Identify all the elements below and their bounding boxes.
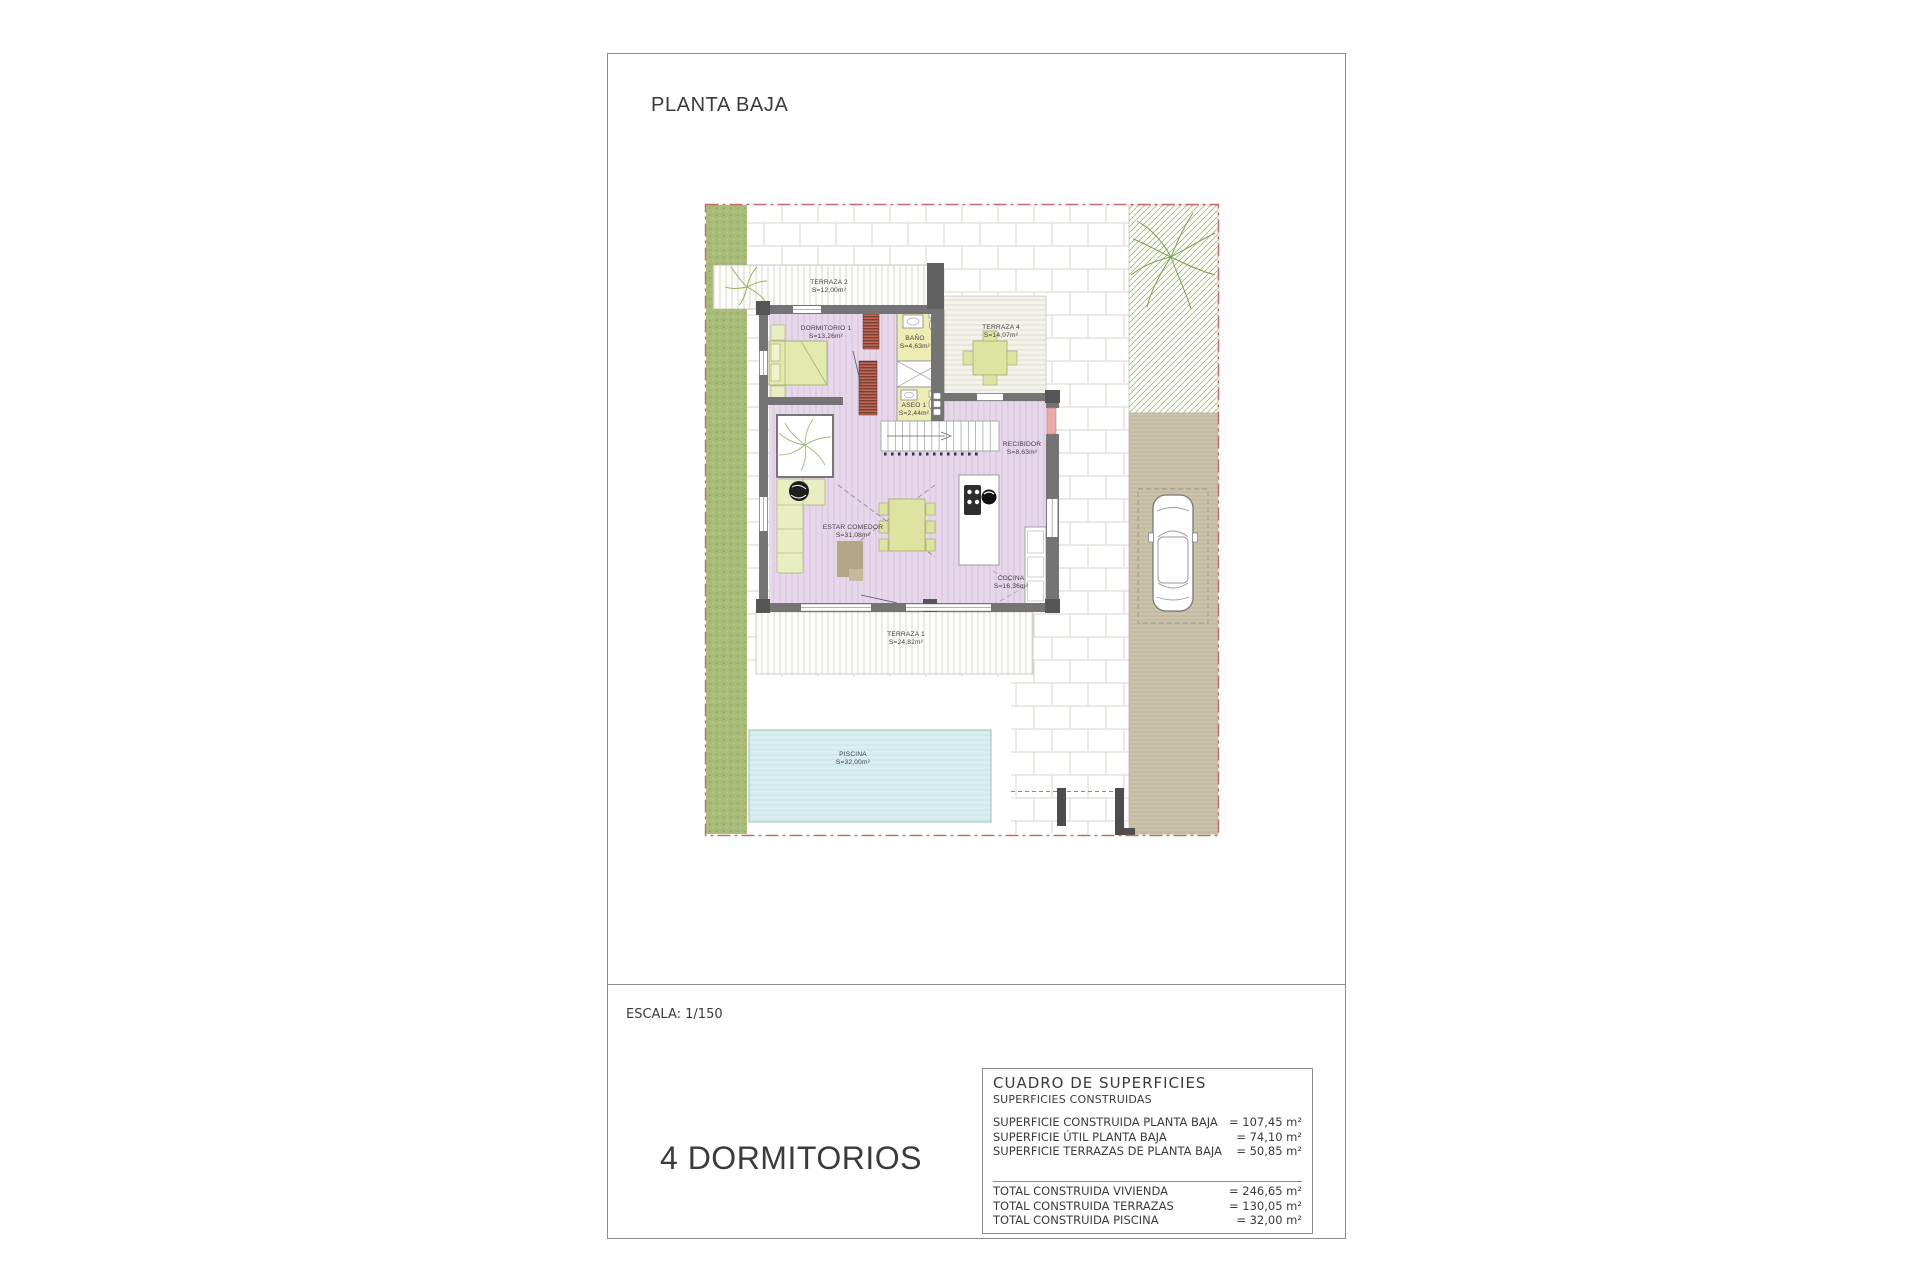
dining-table-icon [879, 499, 935, 551]
plan-title: PLANTA BAJA [651, 94, 788, 117]
surface-row-label: TOTAL CONSTRUIDA VIVIENDA [993, 1184, 1168, 1199]
surface-row-value: = 107,45 m² [1229, 1115, 1302, 1130]
room-label-estar-comedor-area: S=31,08m² [836, 532, 871, 539]
rug-icon [837, 541, 863, 581]
kitchen-counter-icon [1025, 527, 1046, 605]
room-label-aseo-name: ASEO 1 [901, 402, 926, 409]
room-label-terraza1-area: S=24,82m² [889, 639, 924, 646]
surface-row-value: = 50,85 m² [1236, 1144, 1302, 1159]
room-label-piscina-area: S=32,00m² [836, 759, 871, 766]
scale-label: ESCALA: 1/150 [626, 1007, 723, 1022]
surface-total-row: TOTAL CONSTRUIDA VIVIENDA = 246,65 m² [993, 1184, 1302, 1199]
floor-plan-svg: TERRAZA 2 S=12,00m² DORMITORIO 1 S=13,26… [701, 199, 1266, 841]
room-label-terraza2-area: S=12,00m² [812, 287, 847, 294]
surface-table-subtitle: SUPERFICIES CONSTRUIDAS [993, 1093, 1302, 1106]
room-label-cocina-area: S=16,36m² [994, 583, 1029, 590]
wardrobe-icon [863, 313, 879, 349]
sheet-divider [608, 984, 1345, 985]
room-label-dormitorio1-name: DORMITORIO 1 [801, 325, 852, 332]
surface-row-label: TOTAL CONSTRUIDA TERRAZAS [993, 1199, 1174, 1214]
surface-total-row: TOTAL CONSTRUIDA TERRAZAS = 130,05 m² [993, 1199, 1302, 1214]
room-label-dormitorio1-area: S=13,26m² [809, 333, 844, 340]
surface-row-label: SUPERFICIE ÚTIL PLANTA BAJA [993, 1130, 1167, 1145]
surface-table: CUADRO DE SUPERFICIES SUPERFICIES CONSTR… [982, 1068, 1313, 1234]
surface-row-value: = 130,05 m² [1229, 1199, 1302, 1214]
surface-total-row: TOTAL CONSTRUIDA PISCINA = 32,00 m² [993, 1213, 1302, 1228]
surface-rows: SUPERFICIE CONSTRUIDA PLANTA BAJA = 107,… [993, 1115, 1302, 1159]
drawing-sheet: PLANTA BAJA [607, 53, 1346, 1239]
car-icon [1149, 495, 1198, 611]
surface-row-label: SUPERFICIE TERRAZAS DE PLANTA BAJA [993, 1144, 1222, 1159]
driveway [1129, 413, 1218, 834]
room-label-bano-area: S=4,63m² [900, 343, 931, 350]
stairs [881, 421, 999, 456]
surface-row: SUPERFICIE TERRAZAS DE PLANTA BAJA = 50,… [993, 1144, 1302, 1159]
bedrooms-label: 4 DORMITORIOS [660, 1140, 922, 1177]
garden-area [1129, 205, 1218, 413]
page-background: { "page": { "title": "PLANTA BAJA", "sca… [0, 0, 1920, 1280]
room-label-terraza4-name: TERRAZA 4 [982, 324, 1020, 331]
surface-totals: TOTAL CONSTRUIDA VIVIENDA = 246,65 m² TO… [993, 1181, 1302, 1228]
room-label-aseo-area: S=2,44m² [899, 410, 930, 417]
surface-row-label: SUPERFICIE CONSTRUIDA PLANTA BAJA [993, 1115, 1218, 1130]
room-label-recibidor-area: S=8,63m² [1007, 449, 1038, 456]
room-label-terraza2-name: TERRAZA 2 [810, 279, 848, 286]
room-label-recibidor-name: RECIBIDOR [1003, 441, 1041, 448]
pool [749, 730, 991, 822]
room-label-estar-comedor-name: ESTAR COMEDOR [823, 524, 883, 531]
surface-row-label: TOTAL CONSTRUIDA PISCINA [993, 1213, 1159, 1228]
surface-row-value: = 246,65 m² [1229, 1184, 1302, 1199]
surface-row: SUPERFICIE CONSTRUIDA PLANTA BAJA = 107,… [993, 1115, 1302, 1130]
surface-table-title: CUADRO DE SUPERFICIES [993, 1074, 1302, 1092]
kitchen-island-icon [959, 475, 999, 565]
room-label-bano-name: BAÑO [905, 333, 925, 342]
wardrobe-icon [859, 361, 877, 415]
surface-row: SUPERFICIE ÚTIL PLANTA BAJA = 74,10 m² [993, 1130, 1302, 1145]
room-label-terraza1-name: TERRAZA 1 [887, 631, 925, 638]
surface-row-value: = 74,10 m² [1236, 1130, 1302, 1145]
surface-row-value: = 32,00 m² [1236, 1213, 1302, 1228]
room-label-cocina-name: COCINA [998, 575, 1025, 582]
room-label-terraza4-area: S=14,07m² [984, 332, 1019, 339]
entry-door [1047, 408, 1056, 434]
room-label-piscina-name: PISCINA [839, 751, 867, 758]
